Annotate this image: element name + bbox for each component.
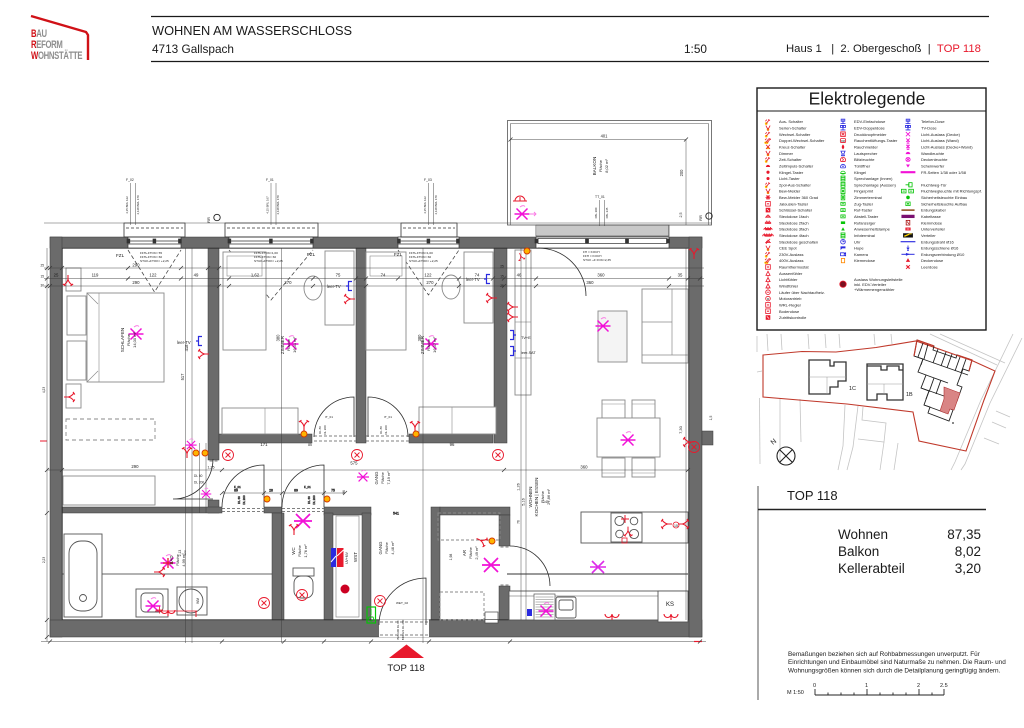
svg-text:+Wärmemengenzähler: +Wärmemengenzähler <box>854 287 895 292</box>
svg-text:28: 28 <box>269 489 273 493</box>
svg-text:Kellerabteil: Kellerabteil <box>838 561 905 576</box>
svg-text:Licht-Auslass (Decke+Wand): Licht-Auslass (Decke+Wand) <box>921 145 973 150</box>
svg-text:Sicherheitsleuchte Aufbau: Sicherheitsleuchte Aufbau <box>921 201 967 206</box>
svg-text:Klingel-Taster: Klingel-Taster <box>779 170 804 175</box>
svg-text:F_01: F_01 <box>234 485 241 489</box>
svg-text:STUK+FTOK= +2,25: STUK+FTOK= +2,25 <box>409 259 438 263</box>
svg-text:85: 85 <box>308 443 312 447</box>
svg-text:Türöffner: Türöffner <box>854 163 871 168</box>
svg-text:Wohnungsgrößen können sich dur: Wohnungsgrößen können sich durch die Det… <box>788 668 1001 675</box>
svg-text:WST: WST <box>353 552 358 562</box>
svg-text:Licht-Auslass (Decke): Licht-Auslass (Decke) <box>921 132 961 137</box>
svg-text:leer-SAT: leer-SAT <box>521 351 536 355</box>
svg-text:27,86 m²: 27,86 m² <box>546 488 551 504</box>
svg-text:Fluchtwegleuchte mit Richtungs: Fluchtwegleuchte mit Richtungspf. <box>921 189 982 194</box>
svg-text:DL 200: DL 200 <box>312 495 316 505</box>
svg-text:Haus 1 | 2. Obergeschoß |: Haus 1 | 2. Obergeschoß | TOP 118 <box>786 43 981 55</box>
svg-text:Erdungsverbindung Ø10: Erdungsverbindung Ø10 <box>921 252 965 257</box>
svg-text:360: 360 <box>580 465 588 470</box>
svg-text:25: 25 <box>500 265 504 269</box>
svg-text:Druckknopfmelder: Druckknopfmelder <box>854 132 887 137</box>
svg-text:KS: KS <box>666 602 674 608</box>
svg-text:1,62: 1,62 <box>251 273 260 278</box>
svg-text:Telefon-Dose: Telefon-Dose <box>921 119 945 124</box>
svg-text:Steckdose 4fach: Steckdose 4fach <box>779 233 809 238</box>
svg-text:leer-TV: leer-TV <box>327 284 341 289</box>
svg-text:75: 75 <box>336 273 341 278</box>
svg-text:WET_02: WET_02 <box>396 601 408 605</box>
svg-text:Uhr: Uhr <box>854 239 861 244</box>
svg-text:Motorantrieb: Motorantrieb <box>779 296 802 301</box>
svg-text:Steckdose 2fach: Steckdose 2fach <box>779 220 809 225</box>
svg-text:EDV-Doppeldose: EDV-Doppeldose <box>854 126 885 131</box>
svg-text:FBL 245: FBL 245 <box>605 207 609 218</box>
svg-text:360: 360 <box>586 280 594 285</box>
svg-text:Anwesenheitslampe: Anwesenheitslampe <box>854 227 891 232</box>
svg-text:DL 200: DL 200 <box>242 495 246 505</box>
svg-text:1,5: 1,5 <box>709 416 713 421</box>
svg-text:Lichtfühler: Lichtfühler <box>779 277 798 282</box>
svg-text:M 1:50: M 1:50 <box>787 690 804 696</box>
svg-text:Fläche: Fläche <box>468 547 473 559</box>
svg-text:Deckenleuchte: Deckenleuchte <box>921 157 948 162</box>
svg-text:DL 60: DL 60 <box>194 474 203 478</box>
svg-text:TOP 118: TOP 118 <box>787 488 838 503</box>
svg-text:Dimmer: Dimmer <box>779 151 794 156</box>
svg-text:270: 270 <box>284 280 292 285</box>
svg-text:Scheinwerfer: Scheinwerfer <box>921 163 945 168</box>
svg-text:401: 401 <box>601 134 609 139</box>
svg-text:89: 89 <box>294 489 298 493</box>
svg-text:WC: WC <box>291 547 296 554</box>
svg-text:Rauchmelder: Rauchmelder <box>854 145 878 150</box>
svg-text:4,99 m²: 4,99 m² <box>181 553 186 567</box>
svg-text:Blitzleuchte: Blitzleuchte <box>854 157 875 162</box>
svg-text:Infoterminal: Infoterminal <box>854 233 875 238</box>
svg-text:270: 270 <box>426 280 434 285</box>
svg-text:30: 30 <box>40 284 44 288</box>
svg-text:Wohnen: Wohnen <box>838 527 888 542</box>
svg-text:WOHNEN AM WASSERSCHLOSS: WOHNEN AM WASSERSCHLOSS <box>152 23 352 38</box>
svg-text:TV+E: TV+E <box>521 336 531 340</box>
svg-text:1C: 1C <box>849 386 856 392</box>
svg-text:Elektrolegende: Elektrolegende <box>809 89 926 109</box>
svg-text:76: 76 <box>517 520 521 524</box>
svg-text:DL 200: DL 200 <box>194 481 204 485</box>
svg-text:418: 418 <box>184 344 189 352</box>
svg-text:FZL: FZL <box>116 253 125 258</box>
svg-text:F_03: F_03 <box>424 178 432 182</box>
svg-text:4,15 BRL 122: 4,15 BRL 122 <box>423 196 427 214</box>
svg-text:4,148 BRL 170: 4,148 BRL 170 <box>434 195 438 215</box>
svg-text:14,00 m²: 14,00 m² <box>132 331 137 347</box>
svg-text:96: 96 <box>342 490 346 494</box>
svg-text:Doppel-Wechsel-Schalter: Doppel-Wechsel-Schalter <box>779 138 825 143</box>
svg-text:15: 15 <box>674 524 678 528</box>
svg-text:Sicherheitsleuchte Einbau: Sicherheitsleuchte Einbau <box>921 195 967 200</box>
svg-text:87,35: 87,35 <box>947 527 981 542</box>
svg-text:3,20: 3,20 <box>955 561 981 576</box>
svg-text:75: 75 <box>331 489 335 493</box>
svg-text:FR-Seiten 1/38 oder 1/58: FR-Seiten 1/38 oder 1/58 <box>921 170 967 175</box>
svg-text:WRL-Regler: WRL-Regler <box>779 303 802 308</box>
svg-text:WM: WM <box>196 598 200 604</box>
svg-text:119: 119 <box>92 273 99 278</box>
svg-text:Hupe: Hupe <box>854 246 864 251</box>
svg-text:DL 80: DL 80 <box>318 426 322 434</box>
svg-text:FZL: FZL <box>307 252 316 257</box>
svg-text:Sprechanlage (Aussen): Sprechanlage (Aussen) <box>854 182 896 187</box>
svg-text:0: 0 <box>813 683 816 689</box>
svg-text:25: 25 <box>40 264 44 268</box>
svg-text:96: 96 <box>450 442 455 447</box>
svg-text:Steckdose 3fach: Steckdose 3fach <box>779 227 809 232</box>
svg-text:leer-TV: leer-TV <box>177 340 191 345</box>
svg-text:4713 Gallspach: 4713 Gallspach <box>152 42 234 56</box>
svg-text:DL 200: DL 200 <box>384 425 388 435</box>
svg-text:Zeit-Schalter: Zeit-Schalter <box>779 157 802 162</box>
svg-text:Zug-Taster: Zug-Taster <box>854 201 874 206</box>
svg-text:7,19 m²: 7,19 m² <box>386 471 391 485</box>
svg-text:Kreuz-Schalter: Kreuz-Schalter <box>779 145 806 150</box>
svg-text:KOCHEN | ESSEN: KOCHEN | ESSEN <box>534 478 539 517</box>
svg-text:Fläche: Fläche <box>426 338 431 351</box>
svg-text:SCHLAFEN: SCHLAFEN <box>120 328 125 353</box>
svg-text:Jalousien-Taster: Jalousien-Taster <box>779 201 809 206</box>
svg-text:FZL: FZL <box>394 252 403 257</box>
svg-text:Rufanzeiger: Rufanzeiger <box>854 220 876 225</box>
svg-text:2,23: 2,23 <box>42 557 46 563</box>
svg-text:Windfühler: Windfühler <box>779 284 799 289</box>
svg-text:Wechsel-Schalter: Wechsel-Schalter <box>779 132 811 137</box>
svg-text:Fläche: Fläche <box>540 490 545 503</box>
svg-text:Licht-Auslass (Wand): Licht-Auslass (Wand) <box>921 138 960 143</box>
svg-text:leer-TV: leer-TV <box>466 277 480 282</box>
svg-text:ZIMMER: ZIMMER <box>280 335 285 354</box>
svg-text:BRL221 DL 200: BRL221 DL 200 <box>401 619 405 640</box>
svg-text:16,01 m²: 16,01 m² <box>292 336 297 352</box>
svg-text:89: 89 <box>234 489 238 493</box>
svg-text:2,5: 2,5 <box>679 213 683 218</box>
svg-text:Schlüssel-Schalter: Schlüssel-Schalter <box>779 208 813 213</box>
svg-text:Erdungsschiene Ø16: Erdungsschiene Ø16 <box>921 246 959 251</box>
svg-text:GANG: GANG <box>378 541 383 555</box>
svg-text:ZIMMER: ZIMMER <box>420 335 425 354</box>
svg-text:DL 200: DL 200 <box>323 425 327 435</box>
svg-text:122: 122 <box>424 273 432 278</box>
svg-text:Serien-Schalter: Serien-Schalter <box>779 126 807 131</box>
svg-text:Bew-Melder: Bew-Melder <box>779 189 801 194</box>
svg-text:BRL100 DL 90: BRL100 DL 90 <box>396 620 400 639</box>
svg-text:517: 517 <box>180 373 185 381</box>
svg-text:Aus- Schalter: Aus- Schalter <box>779 119 804 124</box>
svg-text:7,30: 7,30 <box>678 425 683 434</box>
svg-text:2.5: 2.5 <box>940 683 948 689</box>
svg-text:8,02: 8,02 <box>955 544 981 559</box>
svg-text:1,76 m²: 1,76 m² <box>303 544 308 558</box>
svg-text:Erdungsdraht Ø16: Erdungsdraht Ø16 <box>921 239 954 244</box>
svg-text:Bew-Melder 360 Grad: Bew-Melder 360 Grad <box>779 195 818 200</box>
svg-text:290: 290 <box>132 280 140 285</box>
svg-text:Fläche: Fläche <box>126 333 131 346</box>
svg-text:8,02 m²: 8,02 m² <box>604 159 609 173</box>
svg-text:230V-Auslass: 230V-Auslass <box>779 252 803 257</box>
svg-text:Kabeltasse: Kabeltasse <box>921 214 942 219</box>
svg-text:Zutrittskontrolle: Zutrittskontrolle <box>779 315 807 320</box>
svg-text:4,48 m²: 4,48 m² <box>390 541 395 555</box>
svg-text:Bemaßungen beziehen sich auf R: Bemaßungen beziehen sich auf Rohbabmessu… <box>788 651 981 658</box>
svg-text:Deckendose: Deckendose <box>921 258 944 263</box>
svg-text:Erdungskabel: Erdungskabel <box>921 208 946 213</box>
svg-text:35: 35 <box>678 273 683 278</box>
svg-text:F_01: F_01 <box>304 485 311 489</box>
svg-text:Fläche: Fläche <box>175 554 180 566</box>
svg-text:4,15 BRL 122: 4,15 BRL 122 <box>125 196 129 214</box>
svg-text:4,23: 4,23 <box>42 387 46 393</box>
svg-text:1,25: 1,25 <box>208 466 215 470</box>
svg-text:Zimmerterminal: Zimmerterminal <box>854 195 882 200</box>
svg-text:Aussenfühler: Aussenfühler <box>779 271 803 276</box>
svg-text:360: 360 <box>597 273 605 278</box>
svg-text:Fluchtweg-Tür: Fluchtweg-Tür <box>921 182 947 187</box>
svg-text:F_01: F_01 <box>266 178 274 182</box>
svg-text:2: 2 <box>917 683 920 689</box>
svg-text:Fläche: Fläche <box>380 472 385 484</box>
svg-text:1: 1 <box>865 683 868 689</box>
svg-text:UV+MV: UV+MV <box>345 551 349 564</box>
svg-text:Verteiler: Verteiler <box>921 233 936 238</box>
svg-text:25: 25 <box>500 284 504 288</box>
svg-text:15: 15 <box>500 275 504 279</box>
svg-text:541: 541 <box>393 512 399 516</box>
svg-text:Steckdose geschalten: Steckdose geschalten <box>779 239 818 244</box>
svg-text:DL 60: DL 60 <box>237 496 241 504</box>
svg-text:Zeitimpuls-Schalter: Zeitimpuls-Schalter <box>779 163 814 168</box>
svg-text:Bodendose: Bodendose <box>779 309 800 314</box>
svg-text:TV-Dose: TV-Dose <box>921 126 937 131</box>
svg-text:4,148 BRL 170: 4,148 BRL 170 <box>276 195 280 215</box>
svg-text:Fläche: Fläche <box>598 159 603 172</box>
svg-text:Balkon: Balkon <box>838 544 879 559</box>
svg-text:49: 49 <box>194 273 199 278</box>
svg-text:1,26: 1,26 <box>517 483 521 490</box>
svg-text:BALKON: BALKON <box>592 157 597 176</box>
svg-text:Lautsprecher: Lautsprecher <box>854 151 878 156</box>
svg-text:Raumthermostat: Raumthermostat <box>779 265 809 270</box>
svg-text:Fingerprint: Fingerprint <box>854 189 874 194</box>
svg-text:4,148 BRL 170: 4,148 BRL 170 <box>136 195 140 215</box>
svg-text:400V-Auslass: 400V-Auslass <box>779 258 803 263</box>
svg-text:Klemmdose: Klemmdose <box>921 220 943 225</box>
svg-text:Ruf-Taster: Ruf-Taster <box>854 208 873 213</box>
svg-text:Klingel: Klingel <box>854 170 866 175</box>
svg-text:Fläche: Fläche <box>297 545 302 557</box>
svg-text:25: 25 <box>54 273 59 278</box>
svg-text:2pol-Aus-Schalter: 2pol-Aus-Schalter <box>779 182 811 187</box>
svg-text:15: 15 <box>40 275 44 279</box>
svg-text:171: 171 <box>260 442 268 447</box>
svg-text:IT_01: IT_01 <box>325 415 333 419</box>
svg-text:F_02: F_02 <box>126 178 134 182</box>
svg-text:1:50: 1:50 <box>684 42 707 56</box>
svg-text:GANG: GANG <box>374 471 379 485</box>
svg-text:TT_01: TT_01 <box>595 195 605 199</box>
svg-text:Kamera: Kamera <box>854 252 869 257</box>
svg-text:2,49 m²: 2,49 m² <box>474 546 479 560</box>
svg-text:1,98: 1,98 <box>449 554 453 561</box>
svg-text:200: 200 <box>679 169 684 177</box>
svg-text:STUK+FTOK= +2,25: STUK+FTOK= +2,25 <box>254 259 283 263</box>
svg-text:RR: RR <box>698 215 703 221</box>
svg-text:AR: AR <box>462 550 467 556</box>
svg-text:EDV-Einfachdose: EDV-Einfachdose <box>854 119 886 124</box>
svg-text:Sprechanlage (Innen): Sprechanlage (Innen) <box>854 176 893 181</box>
svg-text:WOHNEN: WOHNEN <box>528 487 533 508</box>
svg-text:BAD: BAD <box>169 555 174 564</box>
svg-text:Steckdose 1fach: Steckdose 1fach <box>779 214 809 219</box>
svg-text:Licht-Taster: Licht-Taster <box>779 176 800 181</box>
svg-text:DL 80: DL 80 <box>379 426 383 434</box>
svg-text:1B: 1B <box>906 392 913 398</box>
svg-text:FBL 200: FBL 200 <box>594 207 598 218</box>
svg-text:16,07 m²: 16,07 m² <box>432 336 437 352</box>
svg-text:74: 74 <box>381 273 386 278</box>
svg-text:WOHNSTÄTTE: WOHNSTÄTTE <box>31 50 83 63</box>
svg-text:RR: RR <box>206 217 211 223</box>
svg-text:Fläche: Fläche <box>384 542 389 554</box>
svg-text:5,16: 5,16 <box>522 498 526 505</box>
svg-text:CEE Spot: CEE Spot <box>779 246 797 251</box>
svg-text:DL 60: DL 60 <box>307 496 311 504</box>
svg-text:122: 122 <box>149 273 157 278</box>
svg-text:290: 290 <box>131 464 139 469</box>
svg-text:IT_01: IT_01 <box>384 415 392 419</box>
svg-text:RM: RM <box>841 140 845 143</box>
svg-text:4,15 BRL 167: 4,15 BRL 167 <box>266 196 270 214</box>
svg-text:STUK +F FOK=2,35: STUK +F FOK=2,35 <box>583 258 611 262</box>
svg-text:TOP 118: TOP 118 <box>387 663 424 674</box>
svg-text:STUK+FTOK= +2,25: STUK+FTOK= +2,25 <box>140 259 169 263</box>
svg-text:Unterverteiler: Unterverteiler <box>921 227 946 232</box>
svg-text:Klemmdose: Klemmdose <box>854 258 876 263</box>
svg-text:Abstell-Taster: Abstell-Taster <box>854 214 879 219</box>
svg-text:Rauchentlüftungs-Taster: Rauchentlüftungs-Taster <box>854 138 898 143</box>
svg-text:Wandleuchte: Wandleuchte <box>921 151 945 156</box>
svg-text:Einrichtungen und Einbaumöbel: Einrichtungen und Einbaumöbel sind Natur… <box>788 659 1006 666</box>
svg-text:290: 290 <box>132 263 140 268</box>
svg-text:575: 575 <box>350 461 358 466</box>
svg-text:Läufer über Nachtaufheiz.: Läufer über Nachtaufheiz. <box>779 290 825 295</box>
svg-text:Leerdose: Leerdose <box>921 265 938 270</box>
svg-text:Fläche: Fläche <box>286 338 291 351</box>
